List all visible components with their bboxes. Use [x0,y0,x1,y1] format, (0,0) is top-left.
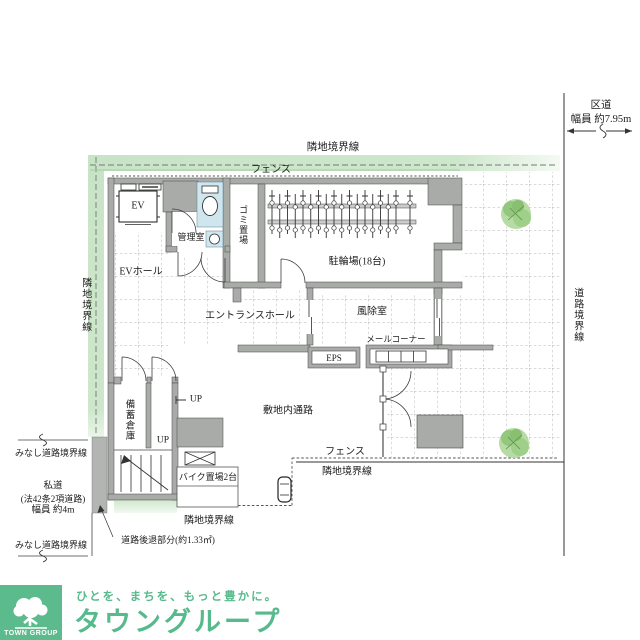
private-road-width: 幅員 約4m [31,506,74,517]
room-label-bike: バイク置場2台 [179,472,237,482]
private-road-name: 私道 [43,482,62,493]
fence-label-bottom: フェンス [325,446,365,458]
logo-text: TOWN GROUP [4,630,58,637]
tree-logo-icon [9,594,53,630]
room-label-windbreak: 風除室 [357,306,387,318]
tree-icon [501,199,531,229]
room-label-manager: 管理室 [177,232,204,242]
site-plan-drawing [0,0,640,640]
room-label-bicycle: 駐輪場(18台) [329,256,386,268]
up-label-a: UP [190,395,202,406]
up-label-b: UP [157,436,169,447]
road-name-label: 区道 [591,100,612,112]
room-label-eps: EPS [326,353,342,363]
break-symbol [600,124,606,138]
private-road-law: (法42条2項道路) [21,494,86,504]
boundary-label-bottom-right: 隣地境界線 [322,466,372,478]
site-plan-page: 隣地境界線 フェンス 区道 幅員 約7.95m 道路境界線 隣地境界線 EV 管… [0,0,640,640]
room-label-passage: 敷地内通路 [263,405,313,417]
footer-brand: TOWN GROUP ひとを、まちを、もっと豊かに。 タウングループ [0,585,640,640]
boundary-label-left: 隣地境界線 [79,278,91,333]
boundary-label-right: 道路境界線 [571,288,583,343]
deemed-road-label-bottom: みなし道路境界線 [15,540,87,550]
room-label-ev-hall: EVホール [119,266,162,278]
room-label-ev: EV [131,200,144,212]
room-label-garbage: ゴミ置場 [238,205,248,245]
boundary-label-top: 隣地境界線 [307,142,360,154]
motorcycle-icon [278,477,291,502]
road-width-label: 幅員 約7.95m [571,114,632,126]
mailboxes-icon [370,349,448,364]
deemed-road-label-top: みなし道路境界線 [15,448,87,458]
room-label-entrance: エントランスホール [205,310,295,322]
setback-label: 道路後退部分(約1.33㎡) [121,535,215,545]
room-label-storage: 備蓄倉庫 [123,399,134,441]
bicycle-icons [268,190,416,238]
boundary-label-bottom-left: 隣地境界線 [184,515,234,527]
tree-icon [499,428,529,458]
town-group-logo: TOWN GROUP [0,585,62,640]
fence-label-top: フェンス [251,164,291,176]
brand-name: タウングループ [74,600,282,639]
dimension-arrow [567,124,632,138]
room-label-mail: メールコーナー [366,335,425,345]
